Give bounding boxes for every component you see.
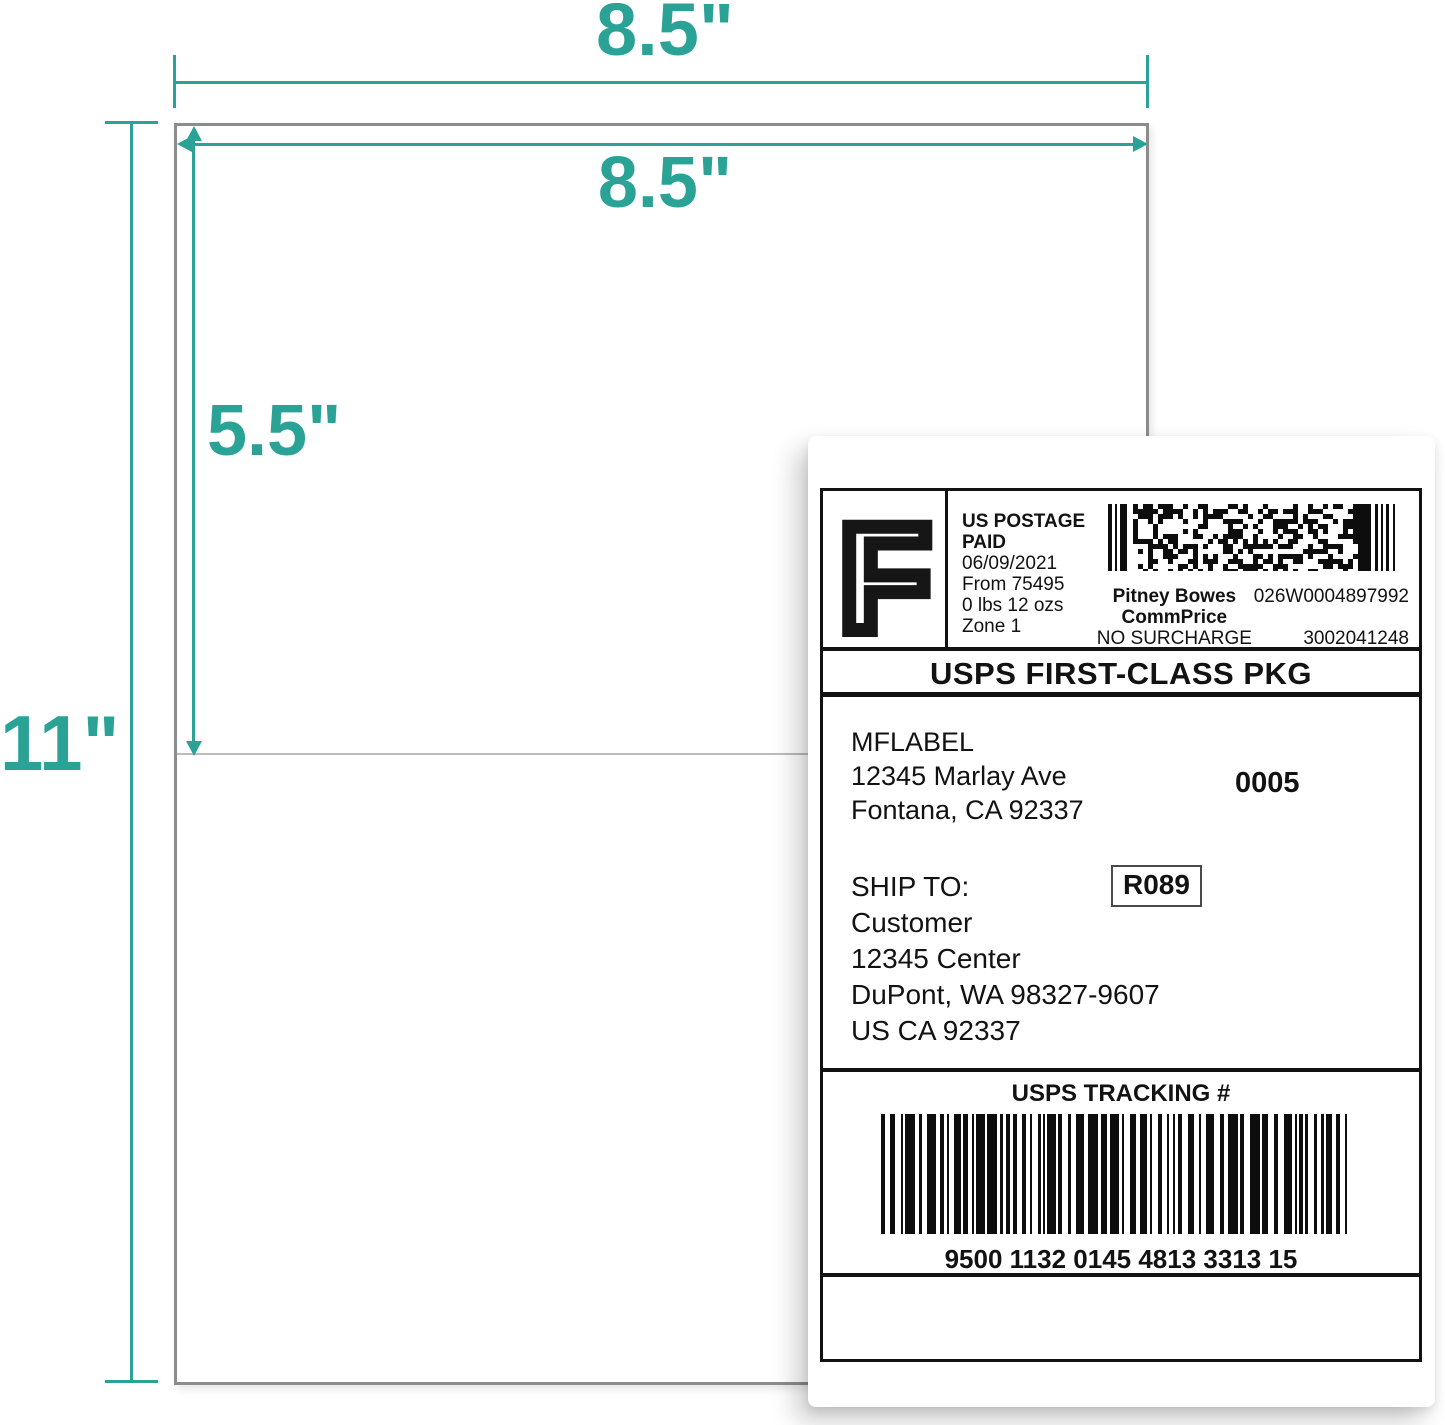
svg-text:F: F bbox=[839, 494, 931, 646]
postage-indicia: F bbox=[823, 491, 948, 647]
arrow-up-icon bbox=[186, 126, 202, 141]
dimension-tick-icon bbox=[173, 55, 176, 108]
blank-section bbox=[823, 1277, 1419, 1359]
postage-meta-left: Pitney Bowes CommPrice NO SURCHARGE bbox=[1095, 586, 1254, 649]
dimension-tick-icon bbox=[1146, 55, 1149, 108]
rate-type: CommPrice bbox=[1095, 607, 1254, 628]
dimension-tick-icon bbox=[105, 121, 158, 124]
shipping-label: F US POSTAGE PAID 06/09/2021 From 75495 … bbox=[820, 488, 1422, 1362]
sender-address: MFLABEL 12345 Marlay Ave Fontana, CA 923… bbox=[851, 725, 1084, 827]
postage-header-section: F US POSTAGE PAID 06/09/2021 From 75495 … bbox=[823, 491, 1419, 651]
recipient-country: US CA 92337 bbox=[851, 1013, 1160, 1049]
sheet-height-label: 11" bbox=[0, 704, 118, 782]
recipient-street: 12345 Center bbox=[851, 941, 1160, 977]
indicia-letter-f: F bbox=[825, 492, 944, 646]
tracking-number: 9500 1132 0145 4813 3313 15 bbox=[823, 1244, 1419, 1275]
address-section: MFLABEL 12345 Marlay Ave Fontana, CA 923… bbox=[823, 697, 1419, 1072]
sequence-number: 0005 bbox=[1235, 767, 1300, 800]
spacer bbox=[1254, 607, 1409, 628]
sender-city: Fontana, CA 92337 bbox=[851, 793, 1084, 827]
dimension-tick-icon bbox=[105, 1380, 158, 1383]
postage-meta: Pitney Bowes CommPrice NO SURCHARGE 026W… bbox=[1095, 586, 1409, 649]
postage-meta-right: 026W0004897992 3002041248 bbox=[1254, 586, 1409, 649]
route-code: R089 bbox=[1111, 865, 1202, 907]
postage-line2: PAID bbox=[962, 532, 1085, 553]
tracking-section: USPS TRACKING # 9500 1132 0145 4813 3313… bbox=[823, 1072, 1419, 1277]
shipping-label-card: F US POSTAGE PAID 06/09/2021 From 75495 … bbox=[808, 436, 1435, 1407]
product-dimension-diagram: 8.5" 11" 8.5" 5.5" F US POSTAGE bbox=[0, 0, 1445, 1425]
postage-zone: Zone 1 bbox=[962, 616, 1085, 637]
recipient-city: DuPont, WA 98327-9607 bbox=[851, 977, 1160, 1013]
label-height-label: 5.5" bbox=[207, 396, 341, 466]
account-id: 3002041248 bbox=[1254, 628, 1409, 649]
postage-date: 06/09/2021 bbox=[962, 553, 1085, 574]
label-height-dimension-line bbox=[192, 138, 195, 744]
label-width-label: 8.5" bbox=[540, 150, 790, 216]
recipient-name: Customer bbox=[851, 905, 1160, 941]
carrier-name: Pitney Bowes bbox=[1095, 586, 1254, 607]
surcharge-note: NO SURCHARGE bbox=[1095, 628, 1254, 649]
postage-line1: US POSTAGE bbox=[962, 511, 1085, 532]
arrow-right-icon bbox=[1133, 136, 1148, 152]
tracking-header: USPS TRACKING # bbox=[823, 1072, 1419, 1108]
postage-origin: From 75495 bbox=[962, 574, 1085, 595]
postage-weight: 0 lbs 12 ozs bbox=[962, 595, 1085, 616]
sheet-width-label: 8.5" bbox=[540, 0, 790, 62]
service-banner: USPS FIRST-CLASS PKG bbox=[823, 651, 1419, 697]
sheet-height-dimension-line bbox=[130, 123, 133, 1382]
arrow-down-icon bbox=[186, 741, 202, 756]
tracking-barcode bbox=[881, 1114, 1349, 1234]
sheet-width-dimension-line bbox=[173, 81, 1149, 84]
meter-id: 026W0004897992 bbox=[1254, 586, 1409, 607]
postage-info: US POSTAGE PAID 06/09/2021 From 75495 0 … bbox=[962, 511, 1085, 647]
sender-name: MFLABEL bbox=[851, 725, 1084, 759]
sender-street: 12345 Marlay Ave bbox=[851, 759, 1084, 793]
postage-2d-barcode bbox=[1108, 504, 1408, 571]
